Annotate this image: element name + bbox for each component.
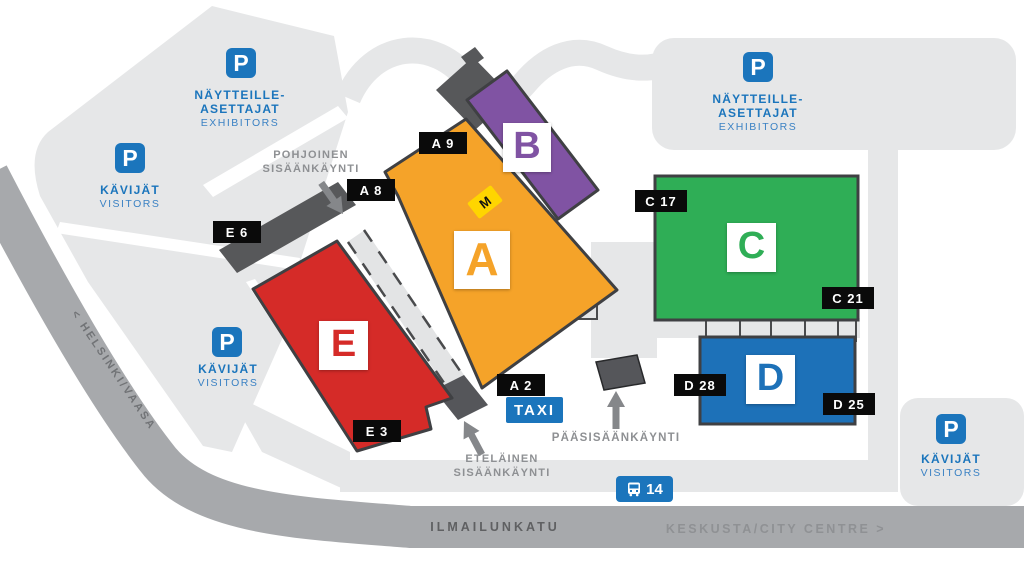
gate-d25: D 25 [823,393,875,415]
south-entrance-label: ETELÄINEN SISÄÄNKÄYNTI [417,452,587,480]
gate-d28: D 28 [674,374,726,396]
gate-e3: E 3 [353,420,401,442]
taxi-badge: TAXI [506,397,563,423]
parking-label-visitors-se: KÄVIJÄT VISITORS [876,452,1024,480]
map-base-layer [0,0,1024,565]
hall-a-label: A [454,231,510,289]
venue-map: A B C D E A 9 A 8 A 2 E 6 E 3 C 17 C 21 … [0,0,1024,565]
gate-a9: A 9 [419,132,467,154]
road-east [868,140,898,490]
road-label-city-centre: KESKUSTA/CITY CENTRE > [646,522,906,536]
parking-label-visitors-w: KÄVIJÄT VISITORS [153,362,303,390]
hall-d-label: D [746,355,795,404]
parking-icon: P [115,143,145,173]
parking-icon: P [936,414,966,444]
gate-a2: A 2 [497,374,545,396]
main-entrance-building [596,355,645,390]
bus-icon [626,481,642,497]
parking-icon: P [743,52,773,82]
hall-b-label: B [503,123,551,172]
road-label-ilmailunkatu: ILMAILUNKATU [405,520,585,534]
north-entrance-label: POHJOINEN SISÄÄNKÄYNTI [231,148,391,176]
bus-stop-badge: 14 [616,476,673,502]
main-entrance-label: PÄÄSISÄÄNKÄYNTI [531,431,701,445]
gate-e6: E 6 [213,221,261,243]
hall-c-label: C [727,223,776,272]
parking-icon: P [212,327,242,357]
gate-a8: A 8 [347,179,395,201]
hall-e-label: E [319,321,368,370]
parking-icon: P [226,48,256,78]
parking-label-visitors-nw: KÄVIJÄT VISITORS [55,183,205,211]
main-entrance-arrow [607,391,625,429]
gate-c21: C 21 [822,287,874,309]
gate-c17: C 17 [635,190,687,212]
parking-label-exhibitors-nw: NÄYTTEILLE- ASETTAJAT EXHIBITORS [160,88,320,130]
parking-label-exhibitors-ne: NÄYTTEILLE- ASETTAJAT EXHIBITORS [678,92,838,134]
